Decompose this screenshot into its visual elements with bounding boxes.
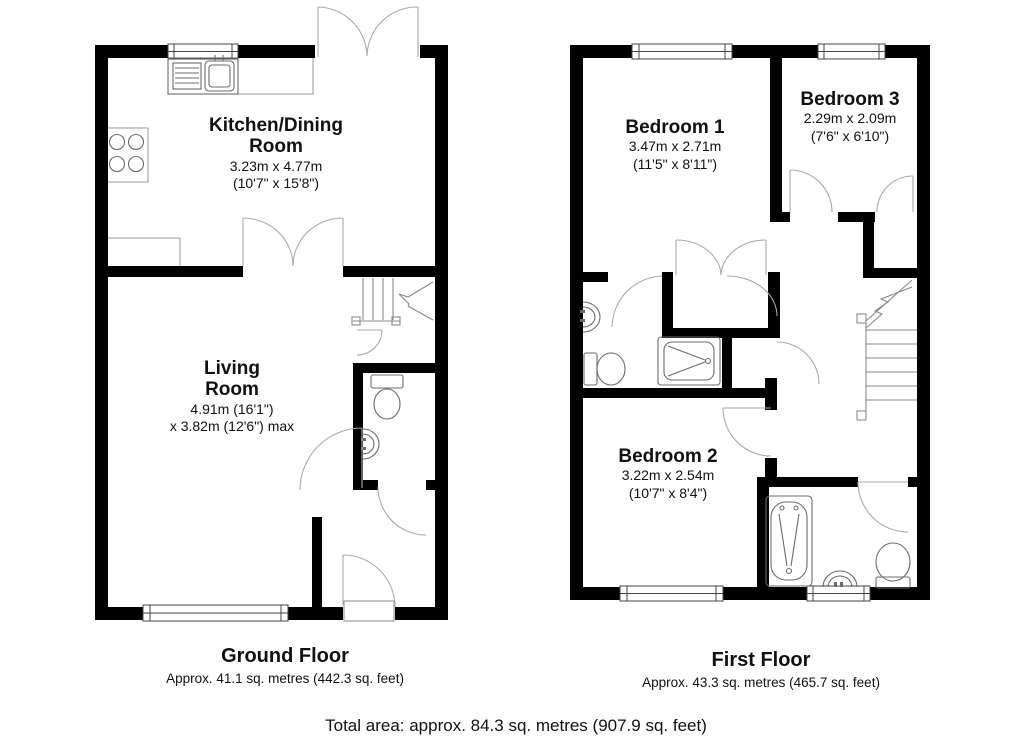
first-stairs xyxy=(857,280,917,420)
room-size-metric: 3.22m x 2.54m xyxy=(618,467,717,485)
room-name: Bedroom 2 xyxy=(618,446,717,467)
room-size-imperial: (10'7" x 15'8") xyxy=(209,175,343,193)
shower-fixture xyxy=(658,337,720,385)
room-name: Bedroom 1 xyxy=(625,117,724,138)
hob-fixture xyxy=(110,135,144,172)
room-label-bedroom1: Bedroom 1 3.47m x 2.71m (11'5" x 8'11") xyxy=(625,117,724,174)
room-size-imperial: (10'7" x 8'4") xyxy=(618,485,717,503)
total-area-text: Total area: approx. 84.3 sq. metres (907… xyxy=(325,716,707,736)
ground-stairs xyxy=(352,278,433,325)
first-window-bedroom3 xyxy=(818,44,885,59)
first-floor-title: First Floor Approx. 43.3 sq. metres (465… xyxy=(642,649,880,690)
room-label-bedroom2: Bedroom 2 3.22m x 2.54m (10'7" x 8'4") xyxy=(618,446,717,503)
floorplan-page: Kitchen/Dining Room 3.23m x 4.77m (10'7"… xyxy=(0,0,1024,744)
bath-fixture xyxy=(766,496,812,586)
room-label-kitchen: Kitchen/Dining Room 3.23m x 4.77m (10'7"… xyxy=(209,115,343,193)
room-size-imperial: (7'6" x 6'10") xyxy=(800,128,899,146)
floor-name: Ground Floor xyxy=(166,645,404,667)
wc-toilet-fixture xyxy=(371,375,403,419)
floor-area: Approx. 41.1 sq. metres (442.3 sq. feet) xyxy=(166,671,404,686)
bathroom-toilet-fixture xyxy=(876,543,910,588)
room-size-metric: 2.29m x 2.09m xyxy=(800,110,899,128)
ground-window-living xyxy=(143,605,288,621)
ground-floor-plan xyxy=(95,7,448,621)
room-name: Kitchen/Dining Room xyxy=(209,115,343,158)
ground-window-kitchen xyxy=(168,44,238,59)
bathroom-basin-fixture xyxy=(823,571,857,587)
ground-door-arcs xyxy=(243,7,426,607)
kitchen-sink-fixture xyxy=(168,55,238,94)
first-window-bedroom1 xyxy=(632,44,732,59)
ground-floor-title: Ground Floor Approx. 41.1 sq. metres (44… xyxy=(166,645,404,686)
wc-basin-fixture xyxy=(361,429,379,459)
room-label-living: Living Room 4.91m (16'1") x 3.82m (12'6"… xyxy=(170,358,294,436)
room-name: Bedroom 3 xyxy=(800,89,899,110)
floor-name: First Floor xyxy=(642,649,880,671)
room-size-metric: 3.47m x 2.71m xyxy=(625,138,724,156)
room-size-imperial: x 3.82m (12'6") max xyxy=(170,418,294,436)
room-size-metric: 4.91m (16'1") xyxy=(170,401,294,419)
floor-area: Approx. 43.3 sq. metres (465.7 sq. feet) xyxy=(642,675,880,690)
room-size-imperial: (11'5" x 8'11") xyxy=(625,156,724,174)
room-size-metric: 3.23m x 4.77m xyxy=(209,158,343,176)
entrance-door-slab xyxy=(344,601,394,621)
room-label-bedroom3: Bedroom 3 2.29m x 2.09m (7'6" x 6'10") xyxy=(800,89,899,146)
room-name: Living Room xyxy=(170,358,294,401)
first-window-bathroom xyxy=(807,586,870,601)
ensuite-toilet-fixture xyxy=(584,353,625,385)
first-window-bedroom2 xyxy=(620,586,723,601)
